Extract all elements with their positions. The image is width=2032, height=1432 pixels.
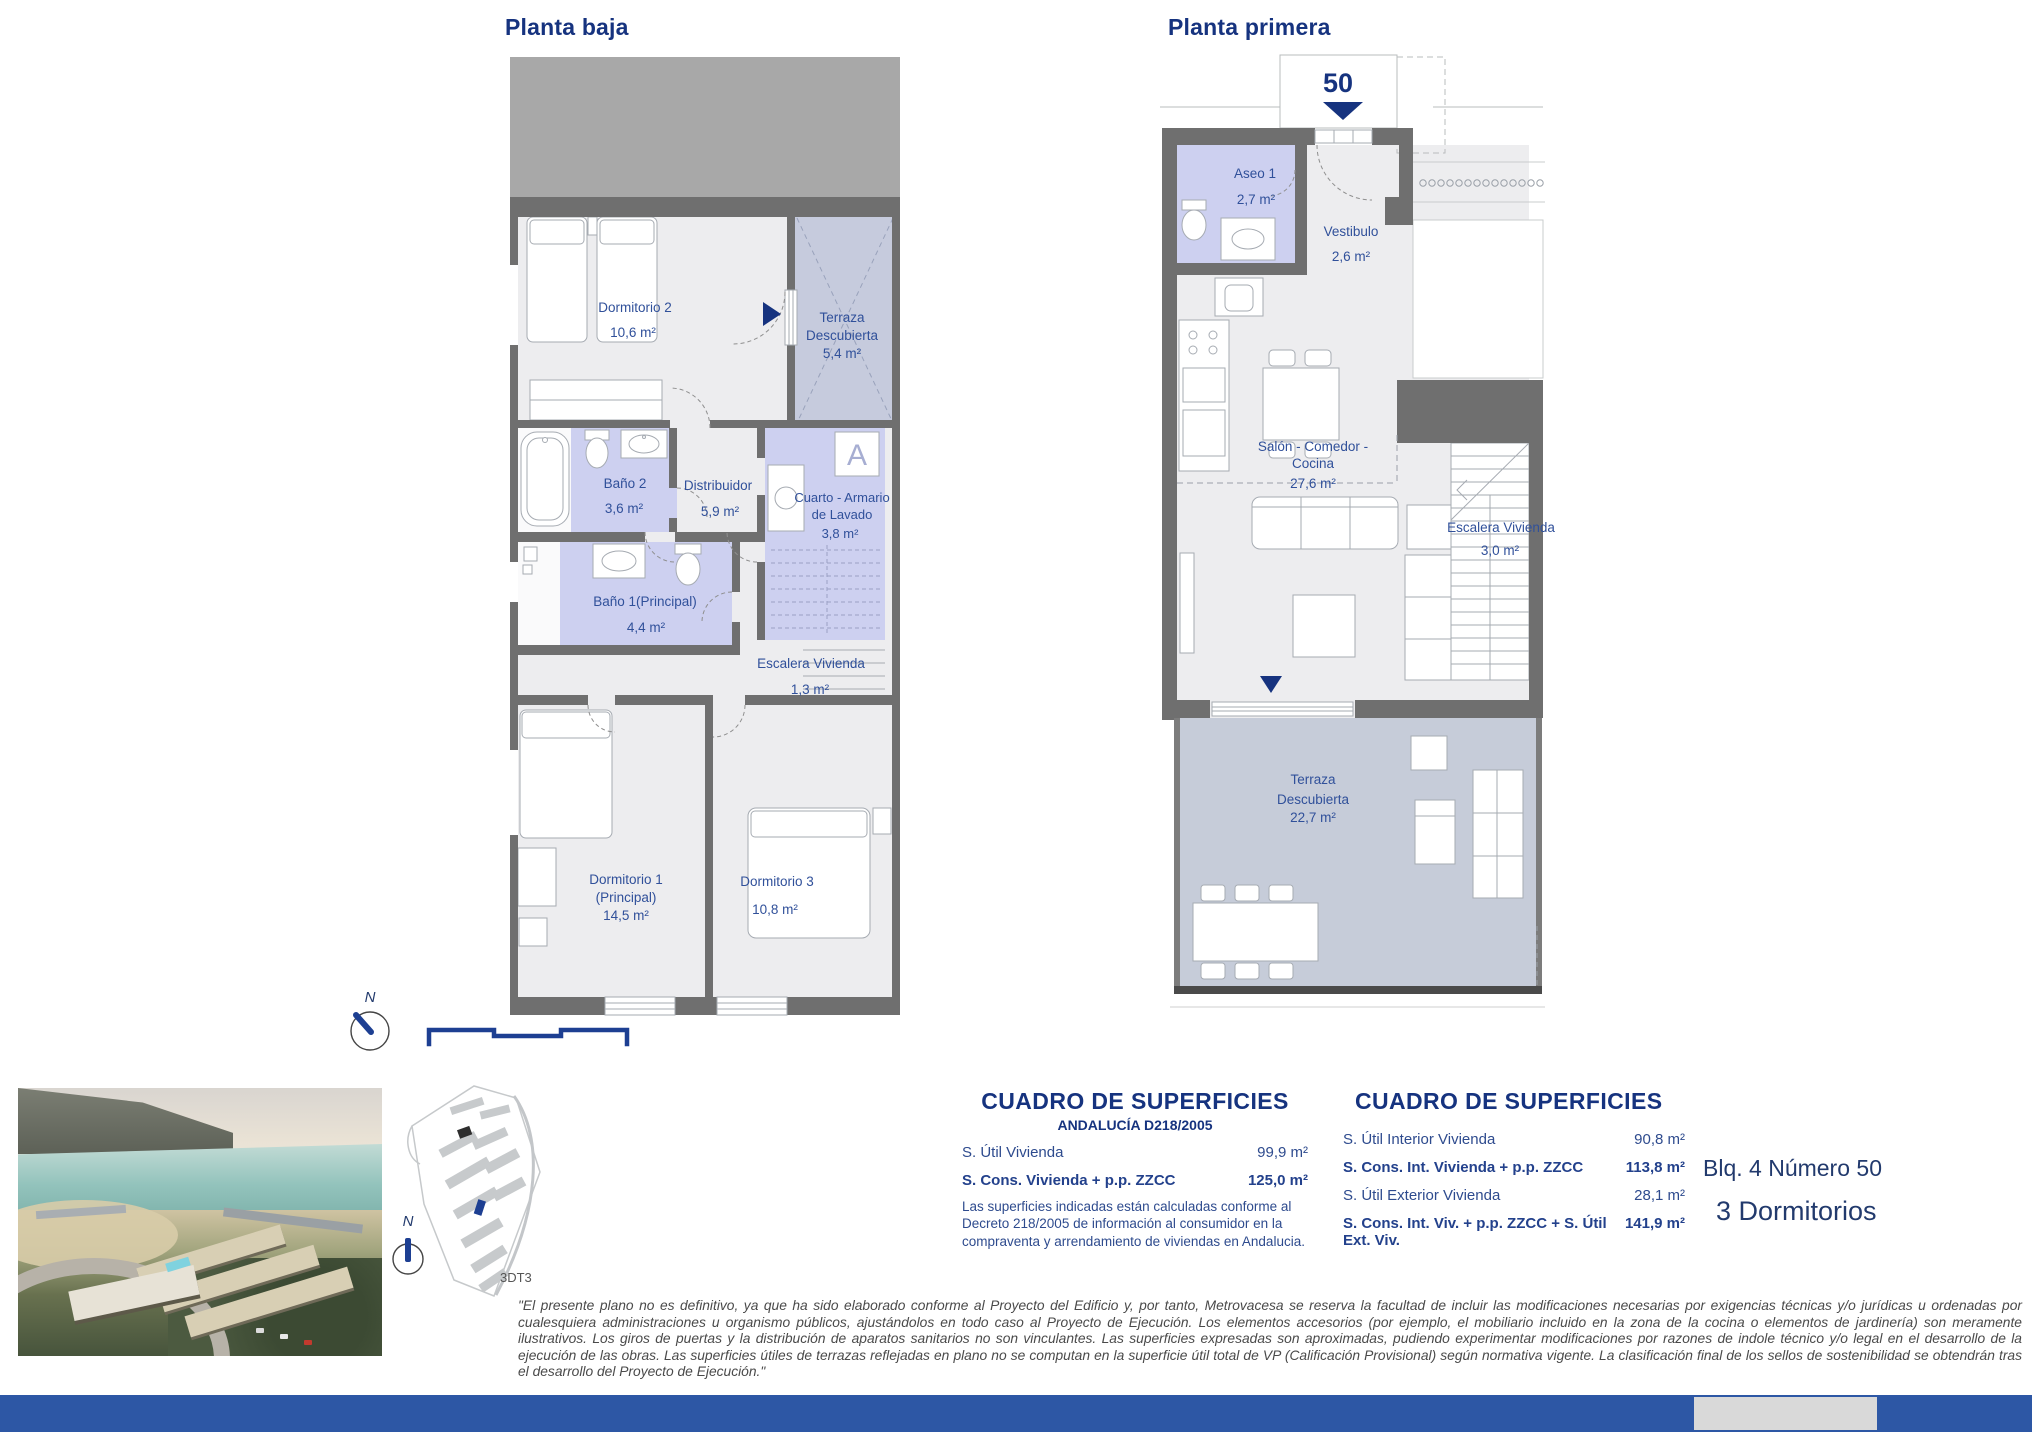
unit-bedrooms-label: 3 Dormitorios [1716,1196,1877,1227]
table-row: S. Útil Interior Vivienda 90,8 m² [1343,1131,1685,1148]
floorplan-sheet: Planta baja Planta primera [0,0,2032,1432]
bano1-label: Baño 1(Principal) [593,594,697,609]
terraza-p1-label-1: Terraza [1290,772,1336,787]
terraza-pb-area: 5,4 m² [823,346,862,361]
table-row: S. Cons. Int. Viv. + p.p. ZZCC + S. Útil… [1343,1215,1685,1249]
aseo1-label: Aseo 1 [1234,166,1276,181]
roof-area [510,57,900,197]
table-row: S. Cons. Vivienda + p.p. ZZCC 125,0 m² [962,1172,1308,1189]
north-label: N [403,1213,414,1230]
surface-table-subtitle: ANDALUCÍA D218/2005 [962,1117,1308,1133]
salon-window [1212,702,1353,716]
north-label: N [365,989,376,1006]
planta-primera-plan: 50 [1155,50,1575,1040]
scale-bar [425,1020,635,1050]
north-compass-site: N [380,1212,440,1290]
unit-number: 50 [1323,68,1353,98]
salon-label-1: Salón - Comedor - [1258,439,1368,454]
distribuidor-area: 5,9 m² [701,504,740,519]
stairs-first-floor [1451,443,1529,680]
planta-baja-plan: Dormitorio 2 10,6 m² Terraza Descubierta… [505,50,905,1065]
planta-primera-title: Planta primera [1168,14,1331,41]
bano1-area: 4,4 m² [627,620,666,635]
terraza-p1-area: 22,7 m² [1290,810,1336,825]
vestibulo-area: 2,6 m² [1332,249,1371,264]
surface-table-andalucia: CUADRO DE SUPERFICIES ANDALUCÍA D218/200… [962,1088,1308,1250]
dormitorio1-area: 14,5 m² [603,908,649,923]
table-note: Las superficies indicadas están calculad… [962,1198,1308,1250]
dormitorio2-area: 10,6 m² [610,325,656,340]
table-row: S. Útil Exterior Vivienda 28,1 m² [1343,1187,1685,1204]
unit-block-label: Blq. 4 Número 50 [1703,1155,1882,1182]
salon-area: 27,6 m² [1290,476,1336,491]
armario-symbol: A [847,439,867,472]
compass-needle [405,1238,411,1262]
photo-car [304,1340,312,1345]
dormitorio2-label: Dormitorio 2 [598,300,672,315]
table-row: S. Útil Vivienda 99,9 m² [962,1144,1308,1161]
aerial-render-photo [18,1088,382,1356]
plan-code: 3DT3 [500,1270,532,1285]
vestibulo-label: Vestibulo [1324,224,1379,239]
cuarto-lavado-area: 3,8 m² [822,526,860,541]
cuarto-lavado-label-2: de Lavado [812,507,873,522]
dormitorio3-area: 10,8 m² [752,902,798,917]
legal-disclaimer: "El presente plano no es definitivo, ya … [518,1298,2022,1381]
bano2-label: Baño 2 [604,476,647,491]
north-compass-ground: N [338,986,410,1060]
table-row: S. Cons. Int. Vivienda + p.p. ZZCC 113,8… [1343,1159,1685,1176]
terraza-p1-label-2: Descubierta [1277,792,1350,807]
cuarto-lavado-label-1: Cuarto - Armario [794,490,889,505]
terraza-pb-label-1: Terraza [819,310,865,325]
dormitorio1-label-2: (Principal) [596,890,657,905]
aseo1-area: 2,7 m² [1237,192,1276,207]
terraza-pb-label-2: Descubierta [806,328,879,343]
dormitorio3-label: Dormitorio 3 [740,874,814,889]
photo-car [256,1328,264,1333]
photo-car [280,1334,288,1339]
bano2-area: 3,6 m² [605,501,644,516]
unit-number-marker: 50 [1280,55,1397,128]
surface-table-title: CUADRO DE SUPERFICIES [1343,1088,1685,1115]
footer-highlight-box [1694,1397,1877,1430]
distribuidor-label: Distribuidor [684,478,753,493]
salon-label-2: Cocina [1292,456,1335,471]
surface-table-general: CUADRO DE SUPERFICIES S. Útil Interior V… [1343,1088,1685,1249]
planta-baja-title: Planta baja [505,14,629,41]
escalera-pb-label: Escalera Vivienda [757,656,865,671]
escalera-pb-area: 1,3 m² [791,682,830,697]
escalera-p1-label: Escalera Vivienda [1447,520,1555,535]
escalera-p1-area: 3,0 m² [1481,543,1520,558]
dormitorio1-label-1: Dormitorio 1 [589,872,663,887]
surface-table-title: CUADRO DE SUPERFICIES [962,1088,1308,1115]
